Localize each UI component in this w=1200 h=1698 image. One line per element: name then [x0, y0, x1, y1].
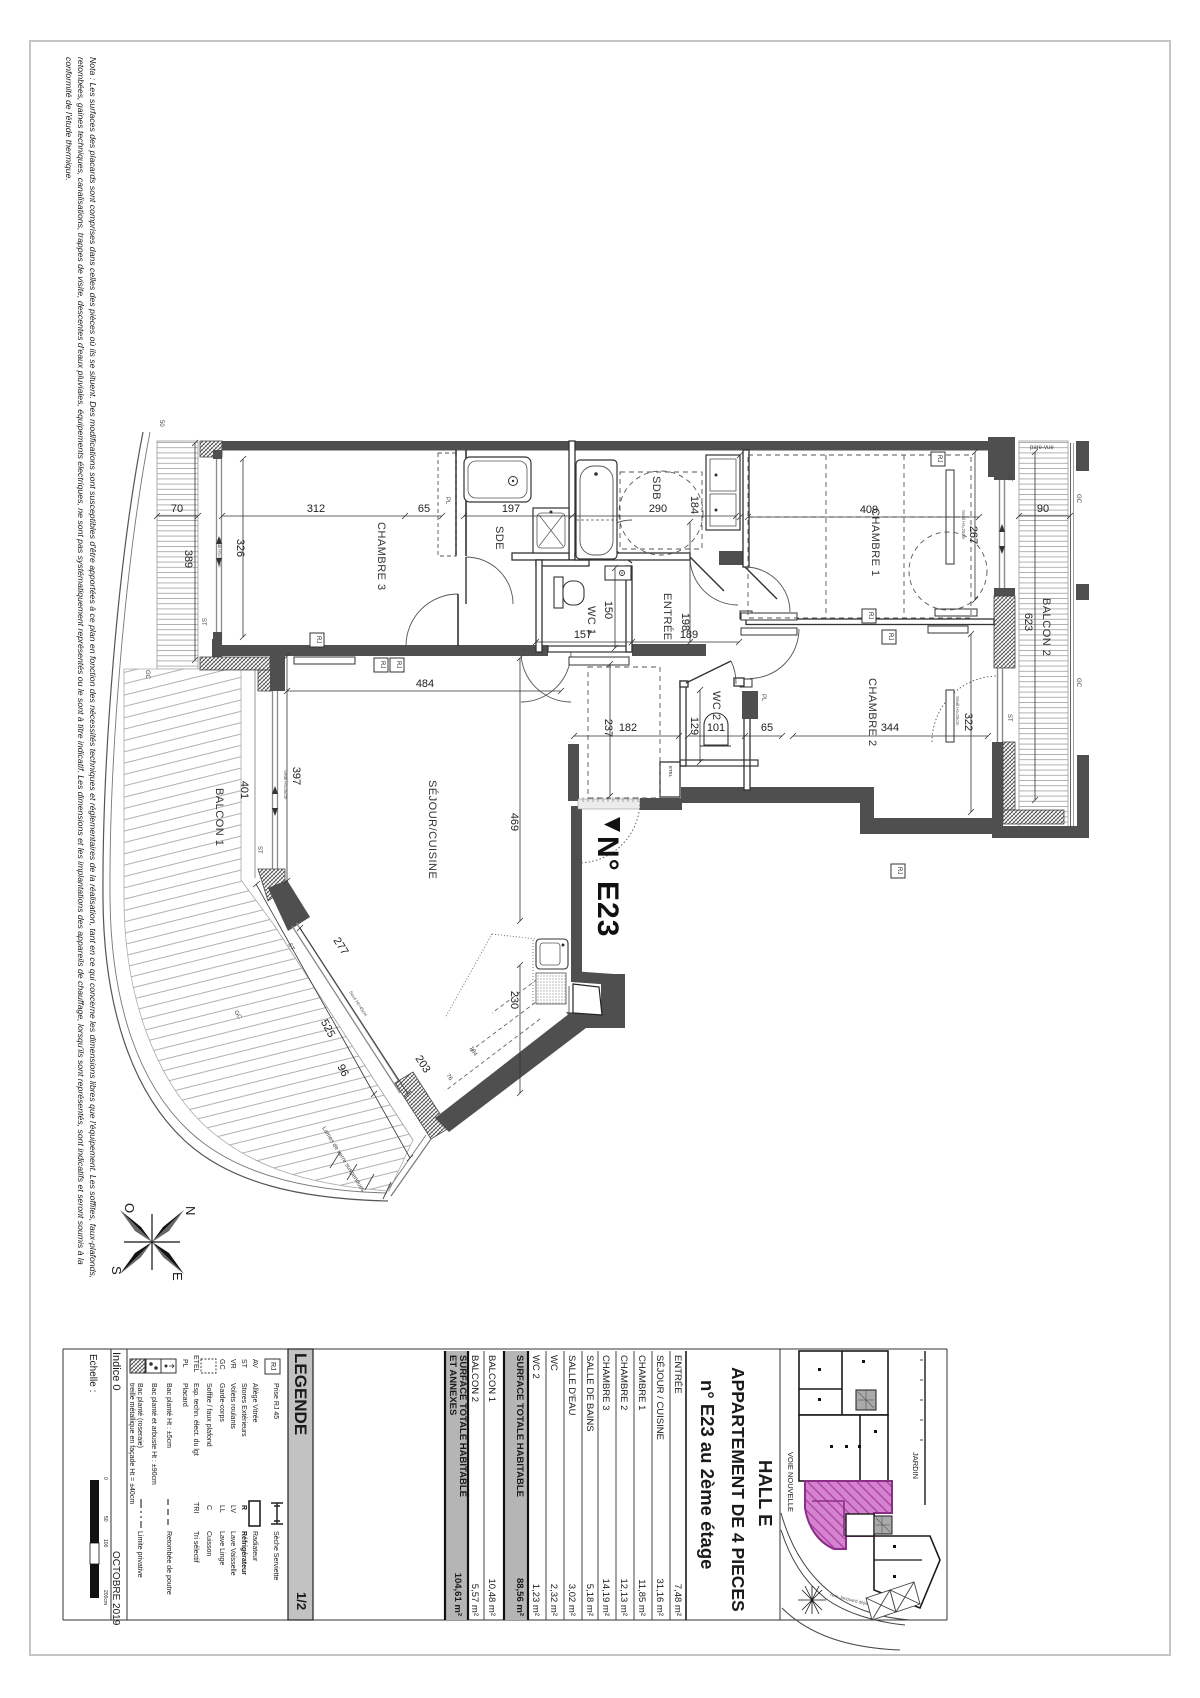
svg-text:198: 198	[679, 613, 691, 631]
svg-text:ST: ST	[240, 1359, 247, 1369]
svg-text:JARDIN: JARDIN	[911, 1452, 920, 1479]
svg-text:ET ANNEXES: ET ANNEXES	[447, 1355, 458, 1415]
svg-text:SDE: SDE	[493, 526, 505, 550]
svg-text:Réfrigérateur: Réfrigérateur	[240, 1531, 247, 1575]
svg-text:ST: ST	[200, 618, 206, 626]
svg-text:7,48 m²: 7,48 m²	[672, 1584, 683, 1616]
svg-text:157: 157	[574, 629, 592, 641]
svg-text:PL: PL	[181, 1359, 188, 1368]
svg-text:469: 469	[508, 813, 520, 831]
svg-text:AV: AV	[251, 1359, 258, 1368]
svg-text:treille métallique en façade H: treille métallique en façade Ht = ±40cm	[128, 1383, 135, 1504]
svg-text:Bac planté (roseraie): Bac planté (roseraie)	[136, 1383, 143, 1448]
svg-text:397: 397	[290, 767, 302, 785]
svg-text:LL: LL	[218, 1505, 225, 1513]
svg-text:197: 197	[502, 503, 520, 515]
svg-text:Esp. techn. élect. du lgt: Esp. techn. élect. du lgt	[192, 1383, 199, 1456]
svg-text:GC: GC	[144, 670, 150, 680]
svg-text:65: 65	[418, 503, 430, 515]
svg-text:ST: ST	[1006, 714, 1012, 722]
svg-text:RJ: RJ	[896, 867, 902, 874]
svg-text:Seuil Ht=25cm: Seuil Ht=25cm	[961, 510, 966, 540]
svg-text:VR: VR	[229, 1359, 236, 1369]
svg-text:SALLE DE BAINS: SALLE DE BAINS	[584, 1355, 595, 1432]
svg-text:90: 90	[1037, 503, 1049, 515]
svg-text:623: 623	[1022, 613, 1034, 631]
svg-text:409: 409	[860, 504, 878, 516]
svg-text:n° E23 au 2ème étage: n° E23 au 2ème étage	[697, 1380, 718, 1569]
svg-text:129: 129	[688, 717, 700, 735]
svg-text:401: 401	[238, 781, 250, 799]
svg-text:5,18 m²: 5,18 m²	[584, 1584, 595, 1616]
svg-text:WC 2: WC 2	[710, 691, 722, 721]
svg-text:150: 150	[602, 601, 614, 619]
svg-text:BALCON 1: BALCON 1	[486, 1355, 497, 1402]
svg-text:RJ: RJ	[379, 661, 385, 668]
svg-text:O: O	[122, 1203, 137, 1213]
svg-text:N: N	[183, 1206, 198, 1215]
svg-text:3,02 m²: 3,02 m²	[566, 1584, 577, 1616]
svg-text:182: 182	[619, 722, 637, 734]
svg-text:0: 0	[102, 1477, 108, 1480]
svg-text:Bac planté Ht : ±5cm: Bac planté Ht : ±5cm	[165, 1383, 172, 1448]
svg-text:322: 322	[962, 713, 974, 731]
svg-text:Allège Vitrée: Allège Vitrée	[251, 1383, 258, 1423]
svg-text:Seuil Ht=25cm: Seuil Ht=25cm	[955, 696, 960, 726]
svg-text:484: 484	[416, 678, 434, 690]
svg-text:11,85 m²: 11,85 m²	[636, 1579, 647, 1616]
svg-text:ETEL: ETEL	[192, 1355, 199, 1373]
svg-text:88,56 m²: 88,56 m²	[514, 1578, 525, 1616]
svg-text:SÉJOUR / CUISINE: SÉJOUR / CUISINE	[654, 1355, 665, 1440]
svg-text:326: 326	[234, 539, 246, 557]
svg-text:Echelle :: Echelle :	[87, 1354, 98, 1392]
svg-text:70: 70	[171, 503, 183, 515]
svg-text:PL: PL	[760, 694, 766, 702]
svg-text:290: 290	[649, 503, 667, 515]
svg-text:Nota : Les surfaces des placar: Nota : Les surfaces des placards sont co…	[88, 57, 98, 1278]
svg-text:ST: ST	[1006, 474, 1012, 482]
svg-text:Soffite / faux plafond: Soffite / faux plafond	[205, 1383, 212, 1447]
svg-text:Retombée de poutre: Retombée de poutre	[165, 1531, 172, 1595]
svg-text:RJ: RJ	[269, 1362, 276, 1371]
svg-text:Seuil Ht=45cm: Seuil Ht=45cm	[283, 770, 288, 800]
svg-text:237: 237	[602, 719, 614, 737]
svg-text:230: 230	[508, 991, 520, 1009]
svg-text:ENTRÉE: ENTRÉE	[672, 1355, 683, 1394]
svg-text:PL: PL	[444, 497, 450, 505]
svg-text:RJ: RJ	[936, 455, 942, 462]
svg-text:CHAMBRE 3: CHAMBRE 3	[375, 522, 387, 591]
svg-text:CHAMBRE 3: CHAMBRE 3	[600, 1355, 611, 1410]
svg-text:OCTOBRE 2019: OCTOBRE 2019	[110, 1551, 121, 1626]
svg-text:RJ: RJ	[867, 612, 873, 619]
svg-text:ENTRÉE: ENTRÉE	[661, 593, 674, 641]
svg-text:LEGENDE: LEGENDE	[291, 1353, 310, 1435]
svg-text:R: R	[240, 1505, 247, 1510]
svg-text:14,19 m²: 14,19 m²	[600, 1579, 611, 1617]
svg-text:344: 344	[881, 722, 899, 734]
svg-text:Radiateur: Radiateur	[251, 1531, 258, 1562]
svg-text:SURFACE TOTALE HABITABLE: SURFACE TOTALE HABITABLE	[514, 1355, 525, 1497]
svg-text:Indice 0: Indice 0	[110, 1352, 122, 1391]
svg-text:10,48 m²: 10,48 m²	[486, 1579, 497, 1617]
svg-text:S: S	[109, 1266, 124, 1275]
svg-text:Garde-corps: Garde-corps	[218, 1383, 225, 1422]
svg-text:GC: GC	[1075, 678, 1081, 688]
svg-text:Placard: Placard	[181, 1383, 188, 1407]
svg-text:184: 184	[688, 496, 700, 514]
svg-text:101: 101	[707, 722, 725, 734]
svg-text:65: 65	[761, 722, 773, 734]
svg-text:104,61 m²: 104,61 m²	[452, 1573, 463, 1616]
svg-text:CHAMBRE 1: CHAMBRE 1	[636, 1355, 647, 1410]
svg-text:RJ: RJ	[887, 633, 893, 640]
svg-text:Tri sélectif: Tri sélectif	[192, 1531, 199, 1563]
svg-text:GC: GC	[1075, 494, 1081, 504]
svg-text:retombées, gaines techniques,: retombées, gaines techniques, canalisati…	[76, 57, 86, 1265]
svg-text:Cuisson: Cuisson	[205, 1531, 212, 1556]
svg-text:C: C	[205, 1505, 212, 1510]
svg-text:SDB: SDB	[650, 476, 662, 500]
svg-text:BALCON 1: BALCON 1	[213, 788, 225, 846]
svg-text:SÉJOUR/CUISINE: SÉJOUR/CUISINE	[426, 780, 439, 879]
svg-text:BALCON 2: BALCON 2	[1040, 598, 1052, 656]
svg-text:LV: LV	[229, 1505, 236, 1513]
svg-text:APPARTEMENT DE 4 PIECES: APPARTEMENT DE 4 PIECES	[728, 1367, 748, 1612]
svg-text:50: 50	[102, 1516, 108, 1522]
svg-text:RJ: RJ	[315, 636, 321, 643]
svg-text:Volets roulants: Volets roulants	[229, 1383, 236, 1429]
svg-text:CHAMBRE 1: CHAMBRE 1	[869, 508, 881, 577]
svg-text:TRI: TRI	[192, 1502, 199, 1513]
svg-text:50: 50	[158, 420, 164, 427]
svg-text:Lave Linge: Lave Linge	[218, 1531, 225, 1565]
svg-text:pare-vue: pare-vue	[1030, 445, 1054, 451]
svg-text:Stores Extérieurs: Stores Extérieurs	[240, 1383, 247, 1437]
svg-text:SALLE D'EAU: SALLE D'EAU	[566, 1355, 577, 1416]
svg-text:ST: ST	[256, 846, 262, 854]
svg-text:Limite privative: Limite privative	[136, 1531, 143, 1578]
svg-text:100: 100	[102, 1539, 108, 1548]
svg-text:VOIE NOUVELLE: VOIE NOUVELLE	[786, 1452, 795, 1512]
svg-text:conformité de l'étude thermiqu: conformité de l'étude thermique.	[64, 57, 74, 181]
svg-text:Sèche Serviette: Sèche Serviette	[272, 1531, 279, 1581]
svg-text:Lave Vaisselle: Lave Vaisselle	[229, 1531, 236, 1576]
svg-text:12,13 m²: 12,13 m²	[618, 1579, 629, 1617]
svg-text:ETEL: ETEL	[668, 766, 673, 778]
svg-text:1/2: 1/2	[294, 1592, 309, 1610]
svg-text:200cm: 200cm	[102, 1590, 108, 1605]
svg-text:HALL E: HALL E	[755, 1460, 776, 1526]
svg-text:CHAMBRE 2: CHAMBRE 2	[618, 1355, 629, 1410]
svg-text:31,16 m²: 31,16 m²	[654, 1579, 665, 1617]
svg-text:1,23 m²: 1,23 m²	[530, 1584, 541, 1616]
svg-text:N° E23: N° E23	[591, 836, 624, 937]
svg-text:BALCON 2: BALCON 2	[469, 1355, 480, 1402]
svg-text:5,57 m²: 5,57 m²	[469, 1584, 480, 1616]
svg-text:WC 2: WC 2	[530, 1355, 541, 1379]
svg-text:267: 267	[967, 526, 979, 544]
svg-text:389: 389	[182, 550, 194, 568]
svg-text:2,32 m²: 2,32 m²	[548, 1584, 559, 1616]
svg-text:WC: WC	[548, 1355, 559, 1371]
svg-text:E: E	[170, 1272, 185, 1281]
svg-text:RJ: RJ	[395, 661, 401, 668]
svg-text:Bac planté et arbuste Ht : ±90: Bac planté et arbuste Ht : ±90cm	[150, 1383, 157, 1485]
svg-text:312: 312	[307, 503, 325, 515]
svg-text:Prise RJ 45: Prise RJ 45	[272, 1383, 279, 1419]
svg-text:GC: GC	[218, 1359, 225, 1370]
